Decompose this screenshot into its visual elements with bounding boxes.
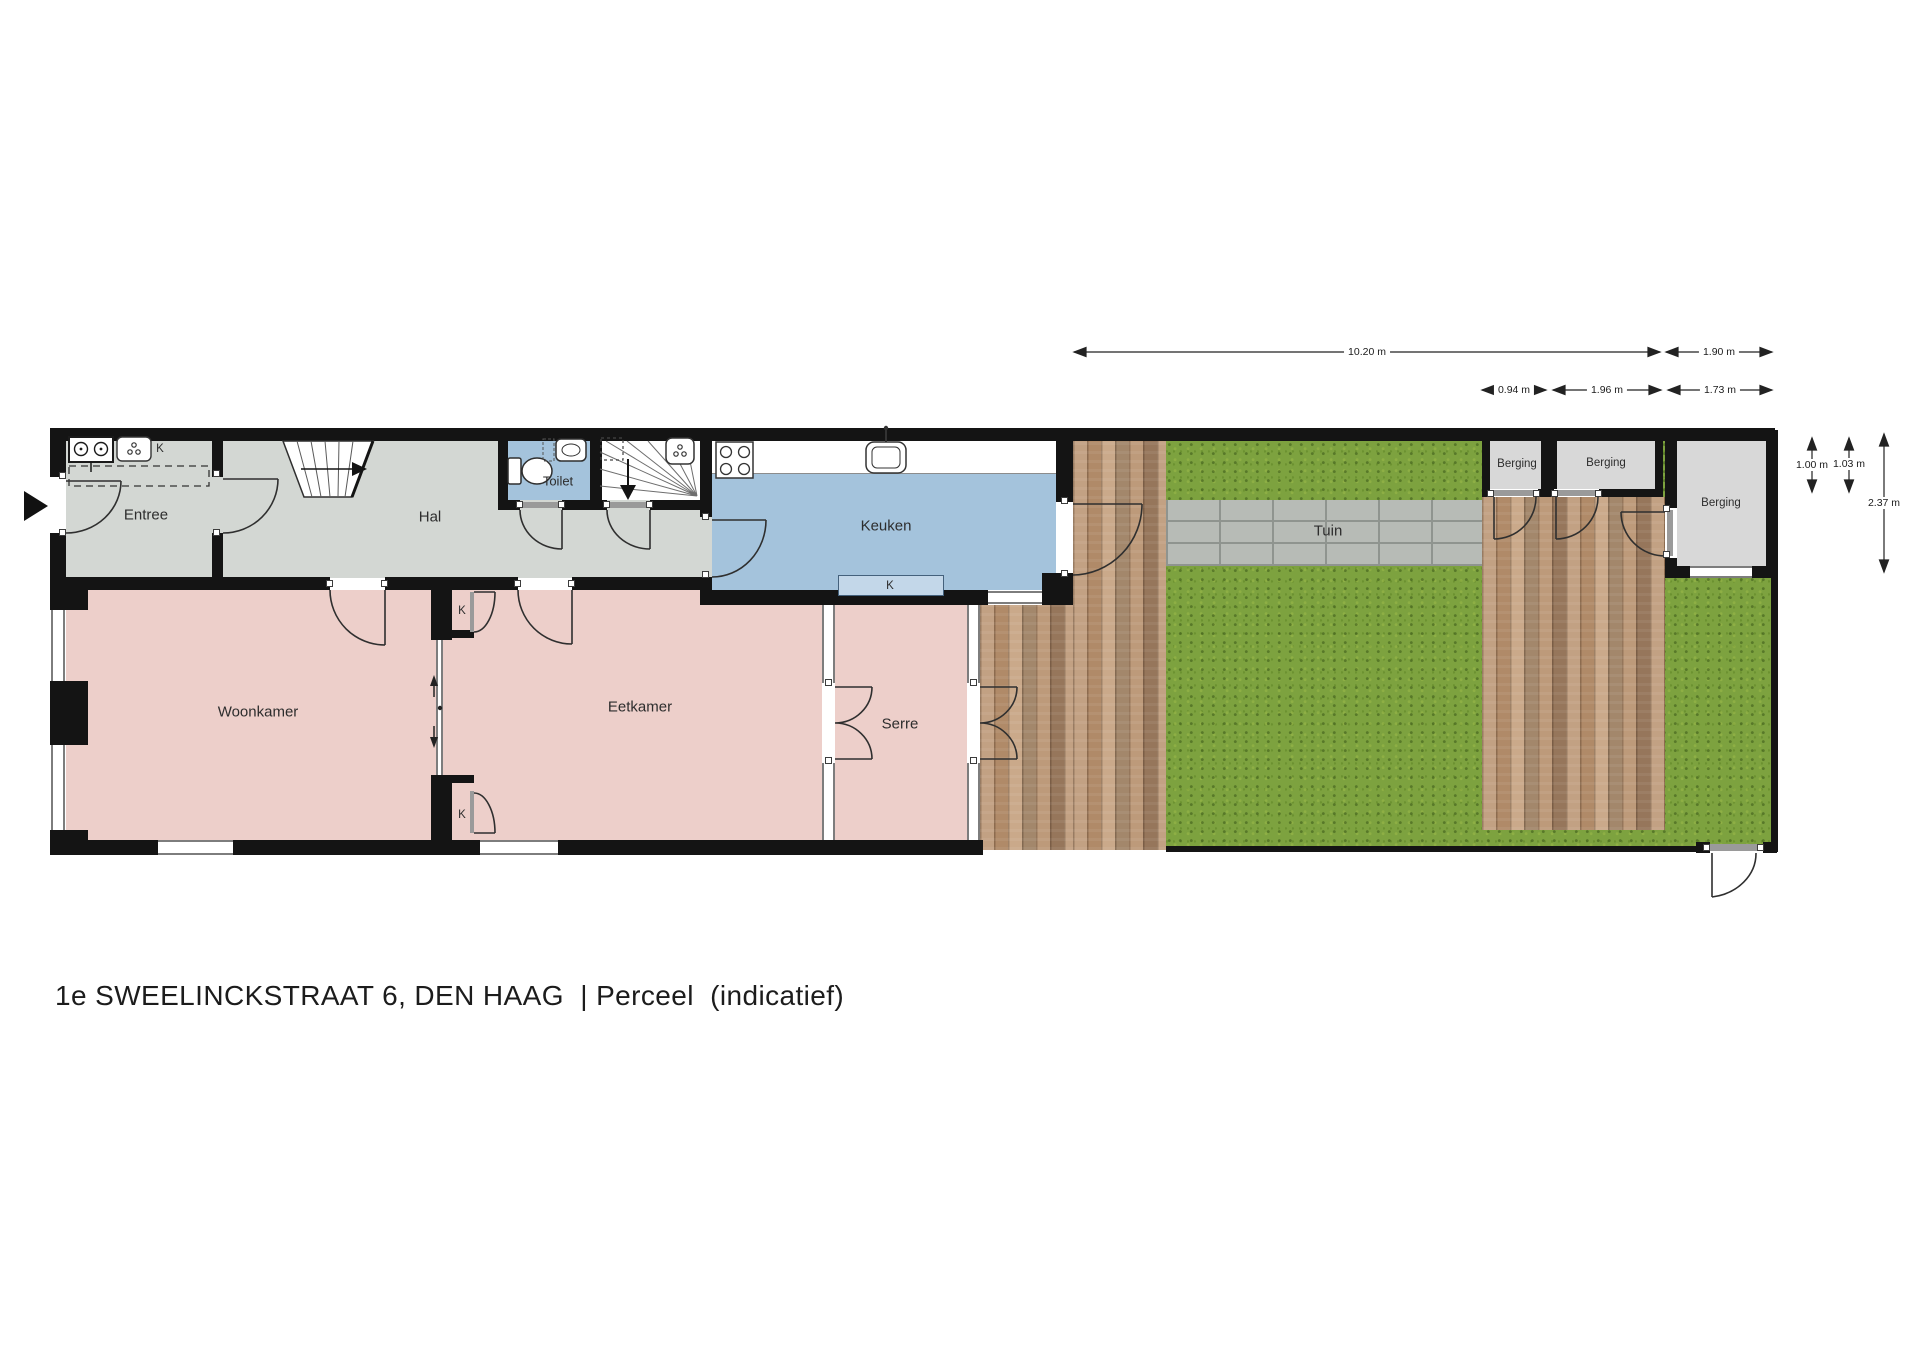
wall-hal-rooms-3 [572, 577, 712, 590]
hinge-square [825, 757, 832, 764]
hinge-square [59, 529, 66, 536]
hinge-square [213, 529, 220, 536]
window-bottom-eetkamer [480, 840, 558, 855]
dim-berging3-width: 1.90 m [1699, 346, 1739, 358]
kitchen-counter [712, 441, 1056, 474]
hinge-square [1703, 844, 1710, 851]
toilet-floor [508, 441, 590, 500]
kast-bottom-stub [452, 775, 474, 783]
floor-plan: Entree Hal Toilet Keuken Woonkamer Eetka… [0, 0, 1920, 1358]
room-label-keuken: Keuken [861, 518, 912, 535]
wall-toilet-right [590, 441, 602, 500]
hinge-square [1663, 551, 1670, 558]
closet-label-kast-onder: K [458, 809, 466, 821]
hinge-square [1757, 844, 1764, 851]
dim-berging3-depth: 2.37 m [1864, 497, 1904, 509]
wall-divider-top [431, 578, 452, 640]
room-label-tuin: Tuin [1314, 523, 1343, 540]
page-title: 1e SWEELINCKSTRAAT 6, DEN HAAG | Perceel… [55, 980, 844, 1012]
hinge-square [568, 580, 575, 587]
hinge-square [970, 757, 977, 764]
hinge-square [970, 679, 977, 686]
ensuite-sliding-door [436, 640, 443, 775]
hinge-square [1533, 490, 1540, 497]
hinge-square [603, 501, 610, 508]
terrace-deck-lower [980, 605, 1073, 850]
room-label-woonkamer: Woonkamer [218, 704, 299, 721]
hinge-square [825, 679, 832, 686]
hinge-square [213, 470, 220, 477]
dim-garden-length: 10.20 m [1344, 346, 1390, 358]
serre-window-left-bottom [822, 763, 835, 840]
closet-label-keuken: K [886, 580, 894, 592]
dim-berging3-inner-width: 1.73 m [1700, 384, 1740, 396]
serre-window-right-top [967, 605, 980, 683]
hinge-square [59, 472, 66, 479]
hinge-square [326, 580, 333, 587]
entrance-arrow-icon [24, 491, 48, 521]
room-label-entree: Entree [124, 507, 168, 524]
garden-gate-arc [1712, 853, 1756, 897]
garden-right-wall [1771, 578, 1778, 852]
gate-post-right [1763, 842, 1777, 853]
window-bottom-woonkamer [158, 840, 233, 855]
wall-left-2 [50, 533, 66, 578]
hinge-square [1551, 490, 1558, 497]
wall-keuken-left-1 [700, 441, 712, 517]
dim-berging2-depth: 1.03 m [1829, 458, 1869, 470]
dim-berging1-width: 0.94 m [1494, 384, 1534, 396]
berging3-door [1667, 510, 1673, 556]
hinge-square [646, 501, 653, 508]
closet-label-kast-boven: K [458, 605, 466, 617]
window-left-2 [51, 745, 65, 830]
closet-label-meterkast: K [156, 443, 164, 455]
window-left-1 [51, 610, 65, 681]
kast-bottom-door [470, 791, 474, 833]
hinge-square [1663, 505, 1670, 512]
hinge-square [702, 513, 709, 520]
gate-door [1710, 844, 1763, 851]
room-label-berging-2: Berging [1586, 457, 1626, 469]
room-label-hal: Hal [419, 509, 442, 526]
stairroom-floor [602, 441, 700, 500]
wall-divider-bottom [431, 775, 452, 840]
berging2-door [1556, 490, 1598, 496]
wall-left-pier-2 [50, 681, 88, 745]
serre-window-right-bottom [967, 763, 980, 840]
hinge-square [1487, 490, 1494, 497]
stairroom-door [607, 502, 650, 508]
hinge-square [514, 580, 521, 587]
terrace-deck [1073, 441, 1166, 850]
dim-berging1-depth: 1.00 m [1792, 459, 1832, 471]
berging3-window [1690, 566, 1752, 578]
wall-keuken-se-pier [1042, 573, 1073, 605]
wall-keuken-right [1056, 441, 1073, 502]
kast-top-door [470, 592, 474, 632]
room-label-berging-1: Berging [1497, 458, 1537, 470]
wall-entree-hal-2 [212, 533, 223, 578]
dim-berging2-width: 1.96 m [1587, 384, 1627, 396]
room-label-serre: Serre [882, 716, 919, 733]
serre-window-left-top [822, 605, 835, 683]
hinge-square [702, 571, 709, 578]
wall-keuken-left-2 [700, 577, 712, 605]
garden-bottom-wall [1166, 846, 1696, 852]
window-keuken-bottom [988, 591, 1042, 604]
room-label-eetkamer: Eetkamer [608, 699, 672, 716]
wall-toilet-bottom-2 [562, 500, 607, 510]
hinge-square [1061, 497, 1068, 504]
hinge-square [558, 501, 565, 508]
hinge-square [1061, 570, 1068, 577]
hinge-square [516, 501, 523, 508]
hinge-square [381, 580, 388, 587]
rear-deck [1482, 497, 1665, 830]
wall-hal-rooms-1 [66, 577, 330, 590]
room-label-berging-3: Berging [1701, 497, 1741, 509]
front-door-opening [51, 477, 65, 533]
toilet-door [520, 502, 562, 508]
hinge-square [1595, 490, 1602, 497]
berging1-door [1492, 490, 1536, 496]
room-label-toilet: Toilet [543, 474, 573, 489]
